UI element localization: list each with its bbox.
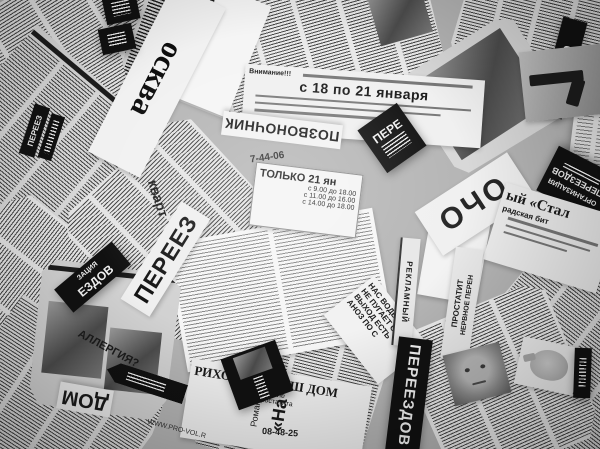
face-eye <box>480 364 486 369</box>
unreadable-print <box>253 375 270 400</box>
unreadable-print <box>111 0 132 17</box>
phone-fragment: 7-44-06 <box>249 144 330 169</box>
right-edge-badge <box>573 348 592 399</box>
unreadable-print <box>43 120 59 153</box>
face-eye <box>464 368 470 373</box>
ad-photo-image <box>233 347 273 380</box>
unreadable-print <box>107 31 127 47</box>
phone-4406-text: 7-44-06 <box>249 144 330 166</box>
newspaper-collage-photo: осква кварт Внимание!!! с 18 по 21 январ… <box>0 0 600 449</box>
pereezdov-banner-text: ПЕРЕЕЗДОВ <box>394 343 423 447</box>
reklamny-text: РЕКЛАМНЫЙ <box>400 261 414 324</box>
face-mouth <box>472 380 486 385</box>
unreadable-print <box>579 358 586 388</box>
dom-text: ДОМ <box>60 384 110 415</box>
tolko-schedule-ad: ТОЛЬКО 21 ян с 9.00 до 18.00 с 11.00 до … <box>249 162 364 239</box>
handgun-photo <box>519 44 600 122</box>
